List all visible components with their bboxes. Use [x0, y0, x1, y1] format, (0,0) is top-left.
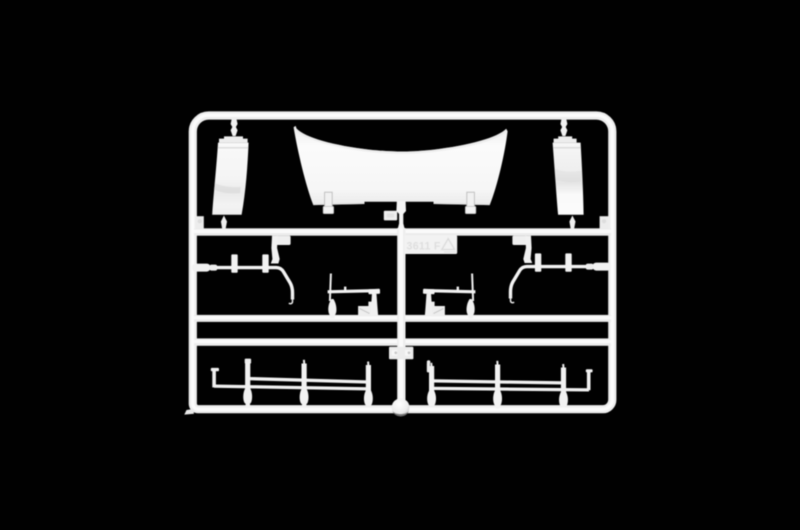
svg-text:3611 F: 3611 F: [407, 241, 441, 253]
